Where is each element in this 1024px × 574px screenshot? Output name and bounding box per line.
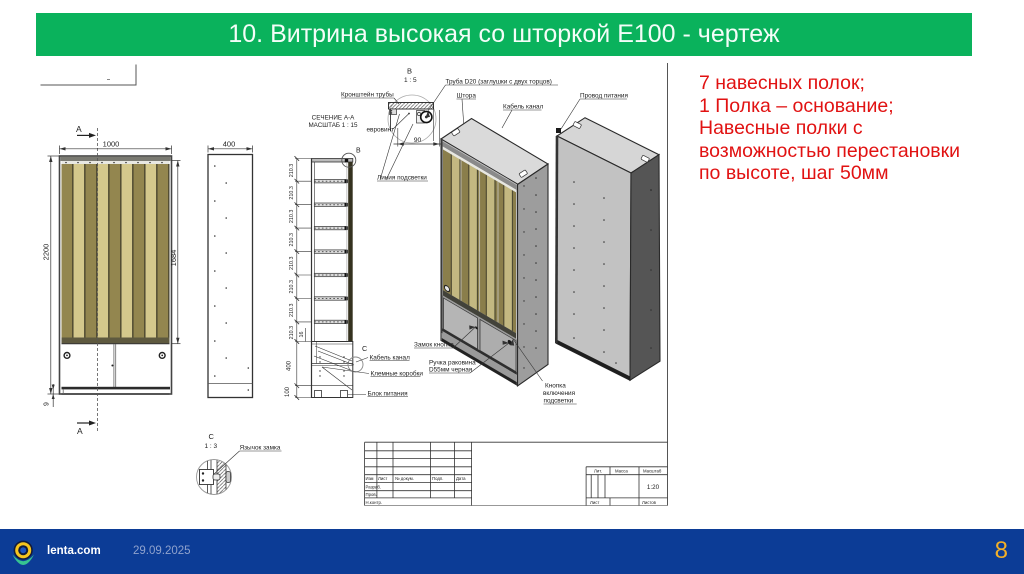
svg-text:Линия подсветки: Линия подсветки (377, 175, 427, 182)
svg-text:Н.контр.: Н.контр. (366, 500, 383, 505)
svg-text:В: В (407, 67, 412, 76)
svg-text:210.3: 210.3 (289, 233, 295, 247)
svg-text:С: С (209, 432, 215, 441)
svg-text:210.3: 210.3 (289, 257, 295, 271)
svg-text:Язычок замка: Язычок замка (240, 445, 281, 452)
svg-text:подсветки: подсветки (544, 398, 574, 405)
svg-text:№ докум.: № докум. (395, 476, 414, 481)
svg-text:Провод питания: Провод питания (580, 93, 628, 100)
svg-text:Штора: Штора (457, 93, 477, 100)
svg-text:Пров.: Пров. (366, 492, 377, 497)
svg-text:90: 90 (414, 137, 422, 144)
svg-text:СЕЧЕНИЕ А-А: СЕЧЕНИЕ А-А (312, 115, 355, 122)
svg-text:Листов: Листов (642, 500, 657, 505)
svg-text:400: 400 (287, 360, 293, 371)
svg-text:2200: 2200 (42, 244, 51, 261)
svg-text:Кнопка: Кнопка (545, 383, 566, 390)
svg-text:1 : 3: 1 : 3 (205, 443, 218, 450)
svg-text:1:20: 1:20 (647, 484, 660, 491)
svg-text:Подп.: Подп. (432, 476, 443, 481)
svg-text:Клемные коробки: Клемные коробки (371, 370, 424, 378)
svg-text:Дата: Дата (456, 476, 466, 481)
svg-text:400: 400 (223, 139, 236, 148)
svg-text:210.3: 210.3 (289, 326, 295, 340)
svg-text:1000: 1000 (103, 139, 120, 148)
svg-text:210.3: 210.3 (289, 210, 295, 224)
svg-text:210.3: 210.3 (289, 164, 295, 178)
svg-text:16: 16 (299, 332, 305, 338)
svg-text:Масштаб: Масштаб (643, 469, 662, 474)
svg-text:210.3: 210.3 (289, 280, 295, 294)
svg-text:Труба D20 (заглушки с двух тор: Труба D20 (заглушки с двух торцов) (446, 78, 552, 86)
svg-text:евровинт: евровинт (367, 127, 395, 134)
svg-text:Масса: Масса (615, 469, 628, 474)
svg-text:9: 9 (44, 402, 51, 406)
svg-text:Кабель канал: Кабель канал (370, 354, 411, 362)
svg-text:Лист: Лист (378, 476, 387, 481)
svg-text:1 : 5: 1 : 5 (404, 77, 417, 84)
svg-text:А: А (77, 426, 83, 436)
svg-text:210.3: 210.3 (289, 303, 295, 317)
svg-text:Ручка раковина: Ручка раковина (429, 360, 476, 367)
svg-text:Изм: Изм (366, 476, 374, 481)
svg-text:МАСШТАБ 1 : 15: МАСШТАБ 1 : 15 (308, 122, 358, 129)
svg-text:D55мм черная: D55мм черная (429, 367, 473, 374)
svg-text:включения: включения (543, 390, 576, 397)
svg-text:1684: 1684 (169, 250, 178, 267)
svg-text:Кронштейн трубы: Кронштейн трубы (341, 91, 394, 99)
svg-text:А: А (76, 124, 82, 134)
svg-text:Замок кнопка: Замок кнопка (414, 342, 454, 349)
svg-text:100: 100 (285, 386, 291, 397)
svg-text:Лит.: Лит. (594, 469, 602, 474)
svg-text:Разраб.: Разраб. (366, 485, 381, 490)
svg-text:С: С (362, 344, 367, 353)
svg-text:В: В (356, 148, 361, 155)
svg-text:Кабель канал: Кабель канал (503, 103, 544, 111)
svg-text:210.3: 210.3 (289, 186, 295, 200)
svg-text:Лист: Лист (590, 500, 599, 505)
